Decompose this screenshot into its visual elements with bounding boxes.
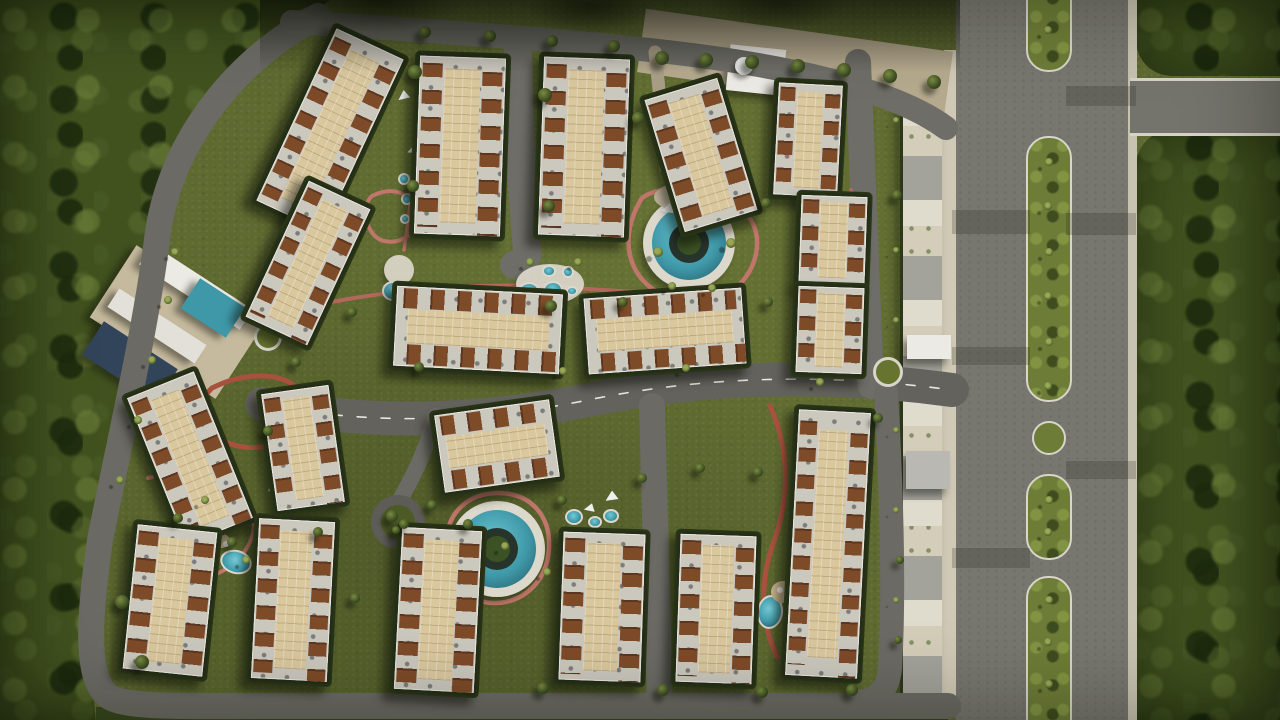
palm-tree — [1045, 680, 1053, 688]
canopy-tree — [927, 75, 941, 89]
palm-tree — [893, 117, 899, 123]
building-courtyard — [563, 70, 604, 224]
median-circle-island — [1032, 421, 1066, 455]
apartment-building — [261, 385, 345, 511]
palm-tree — [1044, 382, 1052, 390]
apartment-building — [393, 286, 563, 375]
palm-tree — [668, 282, 676, 290]
small-pool — [588, 516, 602, 528]
canopy-tree — [756, 686, 768, 698]
canopy-tree — [873, 413, 883, 423]
road-patch — [1066, 213, 1136, 235]
small-pool — [542, 265, 556, 277]
palm-tree — [653, 247, 663, 257]
building-courtyard — [698, 545, 734, 673]
canopy-tree — [347, 307, 357, 317]
canopy-tree — [655, 51, 669, 65]
apartment-building — [414, 56, 506, 237]
road-patch — [952, 548, 1030, 568]
small-pool — [603, 509, 619, 523]
canopy-tree — [699, 53, 713, 67]
shade-sail — [583, 501, 596, 513]
palm-tree — [1044, 202, 1052, 210]
palm-tree — [543, 568, 551, 576]
canopy-tree — [892, 190, 902, 200]
roundabout-green — [876, 360, 900, 384]
building-roof-modules — [847, 204, 866, 285]
palm-tree — [1044, 26, 1052, 34]
canopy-tree — [399, 519, 409, 529]
apartment-building — [785, 409, 871, 678]
canopy-tree — [392, 526, 400, 534]
master-plan-aerial-render — [0, 0, 1280, 720]
small-pool — [562, 266, 574, 278]
canopy-tree — [883, 69, 897, 83]
palm-tree — [134, 416, 142, 424]
apartment-building — [394, 527, 482, 693]
canopy-tree — [263, 426, 273, 436]
palm-tree — [893, 317, 899, 323]
road-patch — [1066, 86, 1136, 106]
canopy-tree — [837, 63, 851, 77]
apartment-building — [127, 371, 253, 544]
canopy-tree — [608, 40, 620, 52]
building-roof-modules — [844, 294, 863, 374]
palm-tree — [893, 247, 899, 253]
palm-tree — [171, 248, 179, 256]
road-patch — [952, 210, 1030, 234]
canopy-tree — [427, 500, 437, 510]
apartment-building — [434, 399, 560, 492]
palm-tree — [1045, 596, 1053, 604]
building-roof-modules — [798, 289, 817, 369]
palm-tree — [1045, 158, 1053, 166]
apartment-building — [798, 195, 867, 285]
canopy-tree — [350, 593, 360, 603]
canopy-tree — [414, 362, 424, 372]
palm-tree — [1044, 638, 1052, 646]
canopy-tree — [545, 300, 557, 312]
canopy-tree — [407, 180, 419, 192]
canopy-tree — [753, 467, 763, 477]
canopy-tree — [761, 198, 771, 208]
canopy-tree — [896, 556, 904, 564]
canopy-tree — [135, 655, 149, 669]
palm-tree — [893, 427, 899, 433]
canopy-tree — [894, 636, 902, 644]
palm-tree — [574, 258, 582, 266]
canopy-tree — [484, 30, 496, 42]
canopy-tree — [227, 537, 237, 547]
apartment-building — [123, 524, 218, 677]
apartment-building — [584, 288, 747, 375]
canopy-tree — [745, 55, 759, 69]
palm-tree — [242, 556, 250, 564]
canopy-tree — [538, 88, 552, 102]
canopy-tree — [546, 35, 558, 47]
palm-tree — [893, 507, 899, 513]
palm-tree — [526, 258, 534, 266]
palm-tree — [1044, 528, 1052, 536]
shade-sail — [398, 89, 411, 100]
palm-tree — [164, 296, 172, 304]
palm-tree — [816, 378, 824, 386]
canopy-tree — [408, 65, 422, 79]
palm-tree — [1045, 338, 1053, 346]
canopy-tree — [618, 297, 628, 307]
canopy-tree — [657, 684, 669, 696]
canopy-tree — [557, 495, 567, 505]
canopy-tree — [291, 357, 301, 367]
umbrella — [777, 587, 783, 593]
apartment-building — [558, 532, 645, 683]
palm-tree — [1045, 496, 1053, 504]
canopy-tree — [419, 26, 431, 38]
palm-tree — [201, 496, 209, 504]
palm-tree — [1045, 248, 1053, 256]
palm-tree — [559, 367, 567, 375]
canopy-tree — [695, 463, 705, 473]
apartment-building — [773, 82, 843, 197]
palm-tree — [726, 238, 736, 248]
canopy-tree — [386, 510, 398, 522]
palm-tree — [708, 284, 716, 292]
canopy-tree — [115, 595, 129, 609]
apartment-building — [796, 286, 865, 374]
canopy-tree — [637, 473, 647, 483]
canopy-tree — [173, 513, 183, 523]
building-courtyard — [818, 202, 848, 279]
palm-tree — [116, 476, 124, 484]
canopy-tree — [632, 112, 644, 124]
road-patch — [1066, 461, 1136, 479]
building-courtyard — [815, 293, 845, 368]
canopy-tree — [791, 59, 805, 73]
building-courtyard — [439, 69, 480, 223]
canopy-tree — [537, 682, 549, 694]
palm-tree — [682, 364, 690, 372]
apartment-building — [675, 534, 756, 685]
palm-tree — [893, 597, 899, 603]
canopy-tree — [846, 684, 858, 696]
apartment-building — [251, 518, 335, 682]
canopy-tree — [543, 200, 555, 212]
shade-sail — [606, 491, 619, 501]
building-courtyard — [583, 543, 622, 671]
small-pool — [565, 509, 583, 525]
palm-tree — [1044, 292, 1052, 300]
building-courtyard — [792, 91, 824, 189]
building-roof-modules — [801, 198, 820, 279]
generated-scene-layer — [0, 0, 1280, 720]
canopy-tree — [763, 297, 773, 307]
road-patch — [952, 347, 1030, 365]
canopy-tree — [313, 527, 323, 537]
palm-tree — [501, 542, 509, 550]
palm-tree — [148, 356, 156, 364]
canopy-tree — [463, 519, 473, 529]
